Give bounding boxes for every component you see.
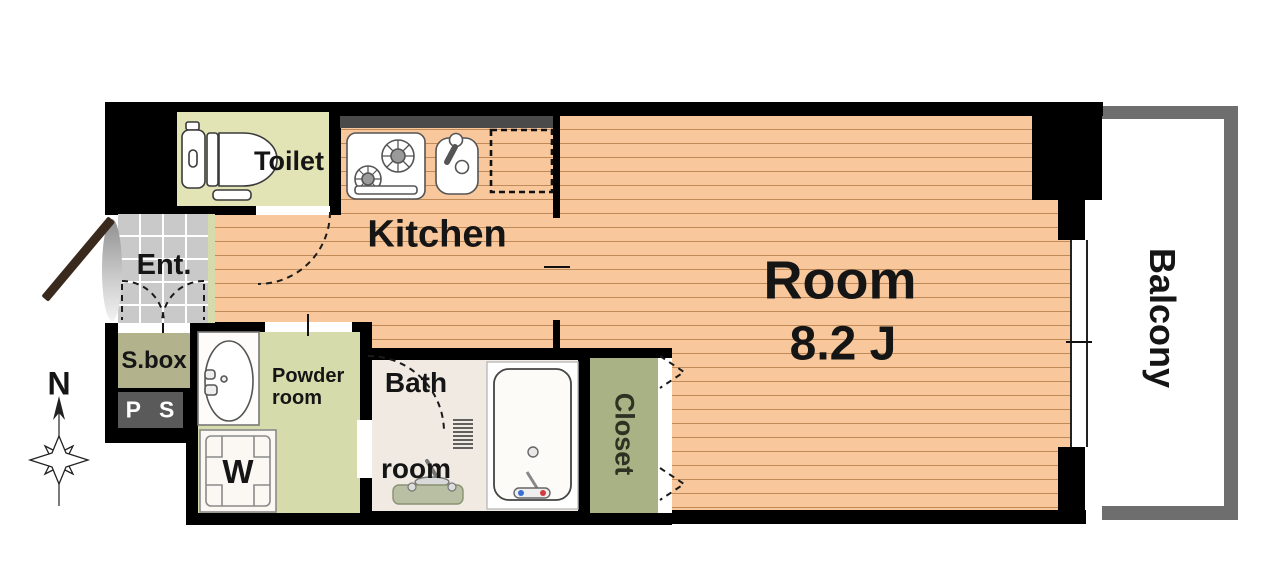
toilet-label: Toilet: [254, 148, 324, 176]
powder-room-label-line2: room: [272, 387, 344, 409]
entrance-door-icon: [41, 216, 122, 321]
entrance-label: Ent.: [137, 251, 192, 281]
bath-room-label-line1: Bath: [381, 369, 451, 398]
powder-room-label-line1: Powder: [272, 365, 344, 387]
compass-rose-icon: [30, 396, 88, 506]
compass-north-label: N: [47, 368, 70, 401]
floor-plan: Toilet Kitchen Room 8.2 J Balcony Ent. S…: [0, 0, 1280, 565]
washing-machine-label: W: [222, 455, 253, 489]
room-label: Room: [764, 253, 917, 308]
bath-room-label-line2: room: [381, 455, 451, 484]
kitchen-label: Kitchen: [367, 216, 506, 255]
bath-drain-icon: [453, 420, 473, 448]
room-size-label: 8.2 J: [790, 321, 897, 370]
refrigerator-space: [491, 130, 552, 192]
bath-room-label: Bath room: [381, 312, 451, 540]
shoe-box-label: S.box: [121, 349, 186, 373]
washbasin-icon: [198, 332, 259, 425]
pipe-space-label: P S: [126, 398, 181, 421]
kitchen-sink-icon: [436, 134, 478, 195]
closet-label: Closet: [609, 393, 640, 476]
powder-room-label: Powder room: [272, 365, 344, 409]
bathtub-icon: [487, 362, 578, 509]
stove-icon: [347, 133, 425, 199]
opening-ticks: [163, 267, 1092, 342]
balcony-label: Balcony: [1141, 248, 1183, 388]
fixtures-overlay: [0, 0, 1280, 565]
